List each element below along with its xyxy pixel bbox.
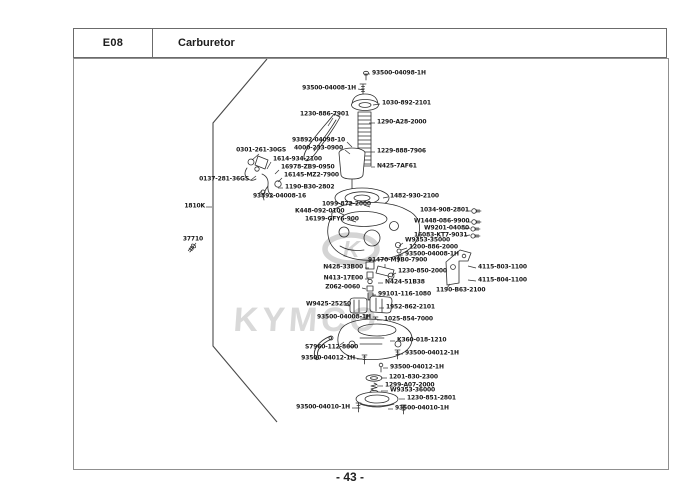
kymco-watermark: K KYMCO [232, 235, 381, 339]
bolt-icon [360, 84, 366, 94]
leader-line [464, 235, 470, 236]
leader-line [267, 162, 271, 169]
leader-line [362, 288, 366, 289]
leader-line [347, 142, 352, 147]
leader-line [468, 266, 476, 268]
exploded-parts-drawing [187, 71, 481, 414]
leader-line [275, 170, 279, 174]
page-number: - 43 - [0, 470, 700, 484]
panel-boundary-line [213, 59, 277, 422]
kymco-emblem-letter: K [343, 236, 361, 262]
kymco-wordmark: KYMCO [232, 301, 381, 339]
catalog-page: E08 Carburetor [0, 0, 700, 495]
leader-line [464, 228, 470, 229]
leader-line [468, 280, 476, 281]
carburetor-exploded-diagram: K KYMCO [0, 0, 700, 495]
